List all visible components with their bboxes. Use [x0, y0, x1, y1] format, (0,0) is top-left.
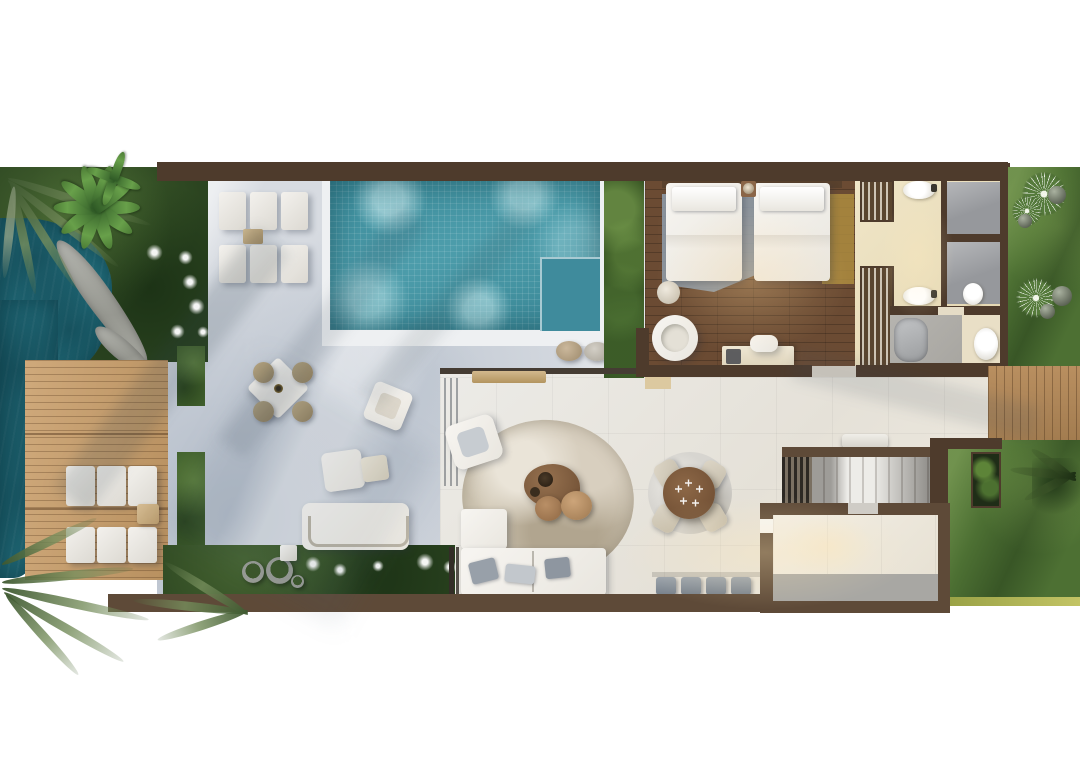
grass-strip: [177, 452, 205, 552]
flower-bush: [178, 250, 193, 265]
deck-lounger-cushion: [66, 466, 95, 506]
sofa-pillow: [504, 563, 536, 584]
bedroom-south-wall: [645, 365, 812, 377]
deck-side-table: [137, 504, 159, 524]
flower-bush: [372, 560, 384, 572]
outdoor-dining-chair: [292, 401, 313, 422]
faucet: [931, 290, 937, 298]
shower: [946, 182, 1002, 234]
pool-lounger-cushion: [281, 192, 308, 230]
outdoor-dining-chair: [292, 362, 313, 383]
deck-lounger-cushion: [128, 527, 157, 563]
desk-chair: [750, 335, 778, 352]
grass-strip: [177, 346, 205, 406]
lounger-side-table: [243, 229, 263, 244]
sofa-pillow: [544, 557, 571, 580]
outdoor-sofa-back: [308, 516, 409, 547]
outdoor-dining-chair: [253, 401, 274, 422]
flower-bush: [170, 324, 185, 339]
bedroom-armchair-seat: [661, 324, 689, 352]
bar-stool: [656, 577, 676, 595]
desk-monitor: [726, 349, 741, 364]
pouf: [535, 496, 562, 521]
table-setting-marks-group: [675, 480, 703, 507]
bathroom-wall: [941, 180, 947, 306]
faucet: [931, 184, 937, 192]
bed-pillow: [760, 187, 824, 211]
flower-bush: [146, 244, 163, 261]
swimming-pool: [322, 180, 606, 346]
table-decor: [538, 472, 553, 487]
pool-lounger-cushion: [250, 245, 277, 283]
deck-joint: [25, 433, 168, 435]
tv-console: [449, 547, 454, 594]
shrub-ball: [1048, 186, 1066, 204]
shrub-ball: [1040, 304, 1055, 319]
flower-bush: [416, 553, 434, 571]
potted-plant: [291, 575, 304, 588]
wardrobe: [860, 180, 894, 222]
pouf: [561, 491, 592, 520]
entry-bench: [472, 371, 546, 383]
deck-lounger-cushion: [97, 527, 126, 563]
dining-table: [663, 467, 715, 519]
shrub-ball: [1052, 286, 1072, 306]
bathtub: [894, 318, 928, 362]
pool-lounger-cushion: [281, 245, 308, 283]
lounge-ottoman: [360, 454, 389, 482]
flower-bush: [182, 274, 198, 290]
lounge-chair: [320, 448, 365, 492]
outdoor-cube-table: [280, 545, 297, 561]
flower-bush: [188, 298, 205, 315]
bedroom-door-threshold: [812, 366, 856, 377]
table-decor: [530, 487, 540, 497]
bedroom-side-table: [657, 281, 680, 304]
flower-bush: [197, 326, 209, 338]
toilet: [974, 328, 998, 360]
bedroom: [645, 180, 855, 370]
flower-bush: [305, 556, 321, 572]
bar-stool: [731, 577, 751, 595]
bathroom-block: [855, 162, 1010, 378]
side-walkway-deck: [988, 366, 1080, 448]
bed-pillow: [672, 187, 736, 211]
tv-console: [456, 547, 459, 594]
dining-area: [648, 450, 738, 540]
pool-lounger-cushion: [219, 245, 246, 283]
poolside-stone-pouf: [556, 341, 582, 361]
bed-sheet-fold: [754, 235, 830, 281]
deck-lounger-cushion: [97, 466, 126, 506]
table-centerpiece: [274, 384, 283, 393]
table-setting-marks: [671, 476, 707, 510]
north-wall: [157, 162, 1008, 181]
deck-lounger-cushion: [128, 466, 157, 506]
bed-sheet-fold: [666, 235, 742, 281]
outdoor-dining-chair: [253, 362, 274, 383]
chaise: [461, 509, 507, 549]
bar-stool: [706, 577, 726, 595]
wardrobe: [860, 266, 894, 370]
wall-stub: [636, 328, 649, 377]
door-mat: [645, 376, 671, 389]
potted-plant: [266, 557, 293, 584]
shrub-ball: [1018, 214, 1032, 228]
bathroom-wall: [946, 234, 1002, 242]
flower-bush: [333, 563, 347, 577]
bar-stool: [681, 577, 701, 595]
pool-lounger-cushion: [219, 192, 246, 230]
table-lamp: [743, 183, 754, 194]
pool-lounger-cushion: [250, 192, 277, 230]
floor-plan: [0, 0, 1080, 780]
potted-plant: [242, 561, 264, 583]
bedroom-south-wall: [856, 365, 890, 377]
toilet: [963, 283, 983, 305]
pool-shallow-shelf: [540, 257, 600, 331]
